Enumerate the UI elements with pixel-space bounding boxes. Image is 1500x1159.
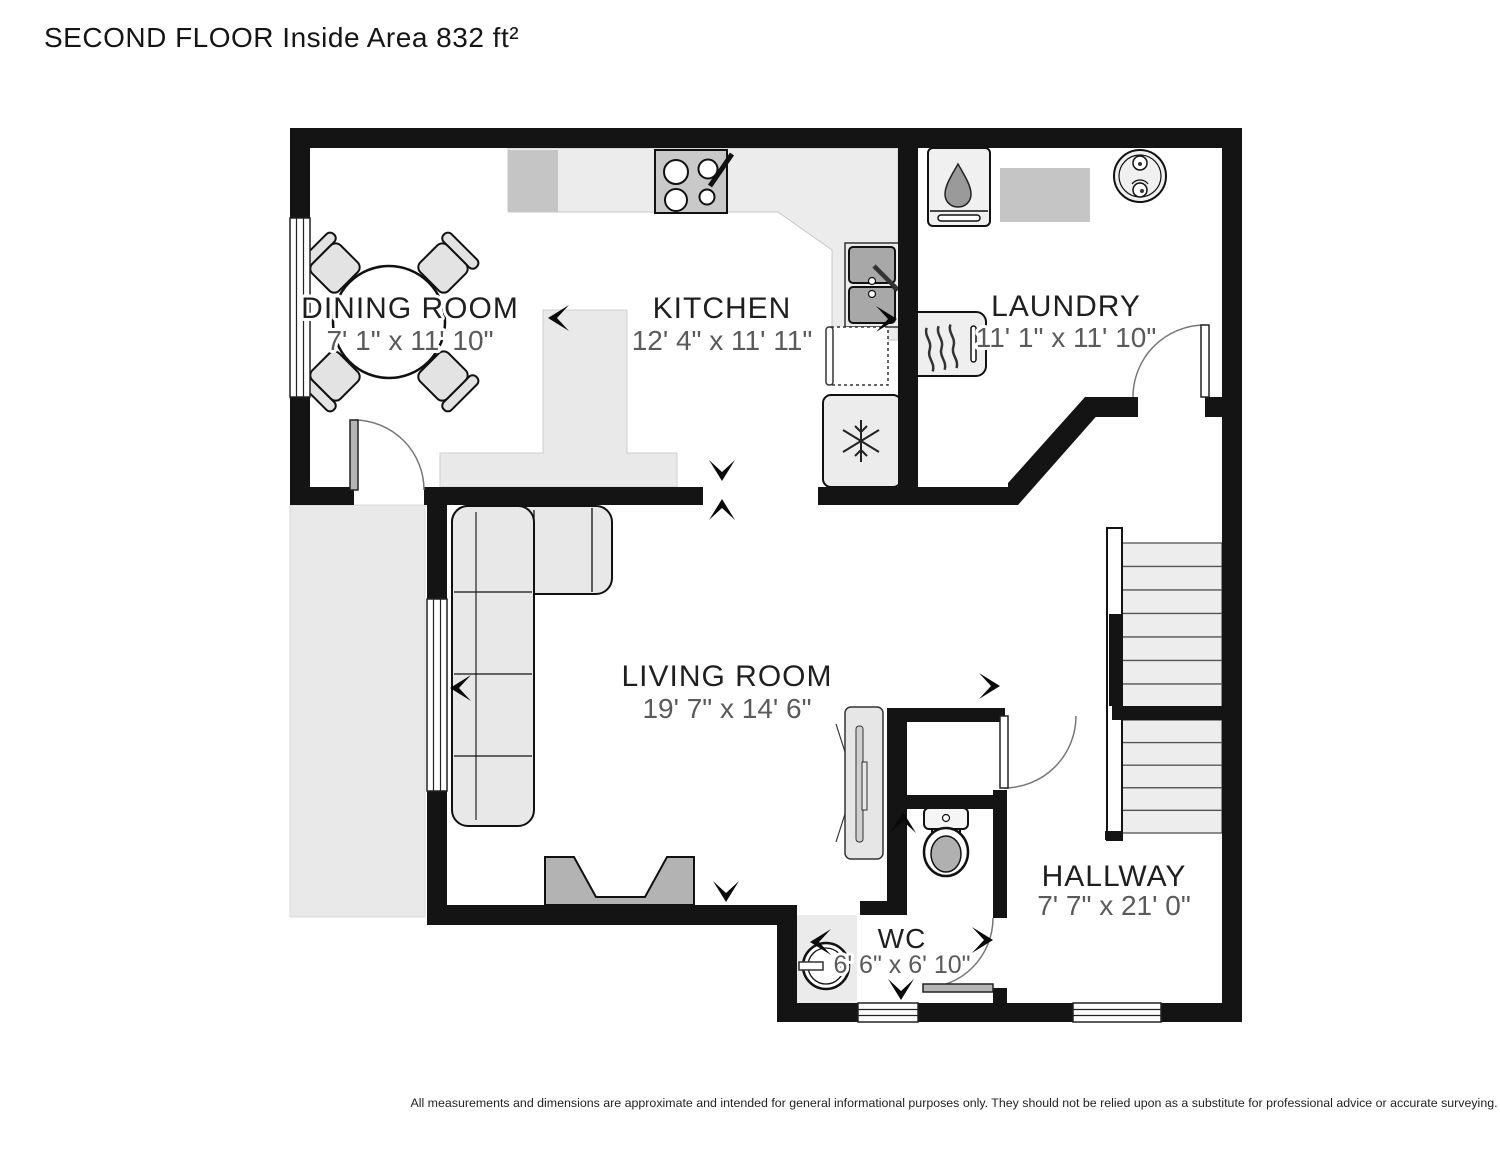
door [350,420,424,490]
room-label: DINING ROOM [301,292,519,325]
direction-arrow-icon [713,881,739,902]
direction-arrow-icon [709,460,735,481]
stove-icon [655,150,732,213]
fireplace-icon [545,857,694,905]
washing-machine-icon [1114,150,1166,202]
direction-arrow-icon [709,499,735,520]
door [1000,716,1076,788]
room-dims: 19' 7" x 14' 6" [642,693,811,724]
room-dims: 6' 6" x 6' 10" [833,951,970,979]
direction-arrow-icon [888,979,914,1000]
room-dims: 11' 1" x 11' 10" [976,322,1157,353]
window [427,599,447,791]
kitchen-sink-icon [845,243,899,327]
washer-icon [928,148,990,226]
direction-arrow-icon [979,673,1000,699]
stairs [1105,528,1222,840]
sofa-icon [452,506,612,826]
floor-plan-page: SECOND FLOOR Inside Area 832 ft² [0,0,1500,1159]
room-dims: 7' 7" x 21' 0" [1037,890,1191,921]
direction-arrow-icon [972,927,993,953]
room-label: WC [878,923,927,954]
room-label: LAUNDRY [991,290,1141,323]
room-dims: 12' 4" x 11' 11" [632,325,813,356]
tv-unit-icon [836,707,883,859]
laundry-counter [1000,168,1090,222]
room-label: LIVING ROOM [621,660,832,693]
fridge-icon [823,395,901,487]
room-dims: 7' 1" x 11' 10" [326,325,493,356]
window [858,1003,918,1022]
room-label: HALLWAY [1042,860,1187,893]
window [1073,1003,1161,1022]
disclaimer-text: All measurements and dimensions are appr… [408,1096,1500,1110]
room-label: KITCHEN [653,292,792,325]
deck [290,505,425,917]
dishwasher-icon [826,327,888,385]
toilet-icon [924,808,968,876]
floor-plan-svg: DINING ROOM 7' 1" x 11' 10" KITCHEN 12' … [0,0,1500,1159]
